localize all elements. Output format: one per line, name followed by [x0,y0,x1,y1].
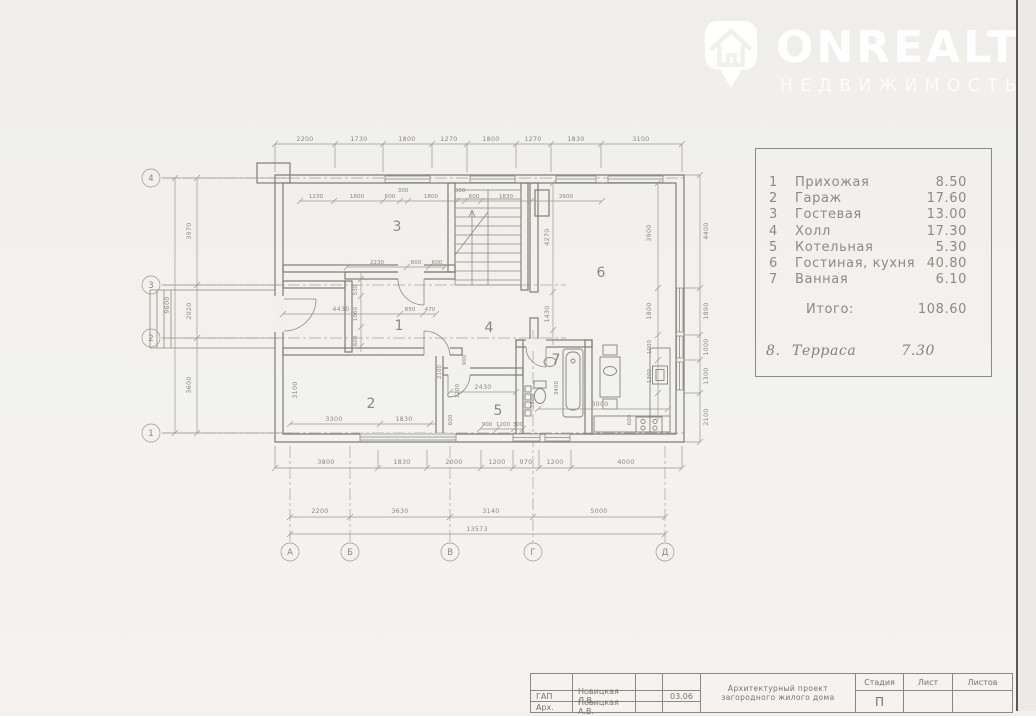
signature-cell [635,701,663,713]
titleblock-empty-cell [635,673,663,691]
dim-label: 1800 [646,302,653,319]
dim-label: 600 [448,414,454,425]
axis-label: 4 [148,174,153,184]
dim-label: 850 [405,307,416,313]
room-number-label: 1 [395,318,404,334]
axis-label: 1 [148,429,153,439]
dim-label: 600 [385,194,396,200]
sheet-value-cell [903,690,953,713]
dim-label: 2100 [437,364,443,379]
dim-label: 1300 [647,368,653,383]
dim-label: 2230 [370,260,385,266]
dim-label: 1800 [398,136,415,143]
axis-label: В [447,548,453,558]
staircase [455,190,521,285]
dim-label: 800 [411,260,422,266]
axis-label: 3 [148,281,153,291]
dim-label: 1200 [546,459,563,466]
dim-label: 4000 [617,459,634,466]
dim-label: 1270 [440,136,457,143]
dim-label: 1890 [703,302,710,319]
scanned-floor-plan-page: { "watermark": { "brand": "ONREALT", "su… [0,0,1036,711]
dim-label: 1430 [544,305,551,322]
sheet-edge [1018,0,1036,711]
dim-label: 3100 [632,136,649,143]
role-cell: Арх. [530,701,573,713]
titleblock-empty-cell [530,673,573,691]
dim-label: 3630 [391,508,408,515]
titleblock-empty-cell [662,673,701,691]
room-number-label: 5 [494,403,503,419]
dim-label: 530 [353,284,359,295]
dim-label: 1830 [395,416,412,423]
dim-label: 4270 [544,228,551,245]
axis-label: Б [347,548,353,558]
dim-label: 1270 [524,136,541,143]
name-cell: Новицкая А.В. [572,701,636,713]
dim-label: 2020 [186,302,193,319]
sheets-header-cell: Листов [952,673,1013,691]
dim-label: 1200 [488,459,505,466]
room-number-label: 4 [485,320,494,336]
dim-label: 4400 [703,222,710,239]
fixtures [525,345,670,432]
dim-label: 1230 [309,194,324,200]
stage-header-cell: Стадия [855,673,904,691]
dim-label: 1200 [496,422,511,428]
dim-label: 3800 [317,459,334,466]
project-title-line2: загородного жилого дома [721,693,834,702]
dim-label: 2500 [530,393,536,408]
dim-label: 2100 [703,408,710,425]
dim-label: 9600 [164,296,171,313]
dim-label: 1200 [455,383,461,398]
dim-label: 900 [482,422,493,428]
dim-label: 3300 [325,416,342,423]
stage-value-cell: П [855,690,904,713]
dim-label: 900 [462,354,468,365]
dim-label: 1830 [393,459,410,466]
sheet-header-cell: Лист [903,673,953,691]
axis-label: А [287,548,293,558]
dim-label: 1830 [567,136,584,143]
dim-label: 2200 [311,508,328,515]
dim-label: 3970 [186,222,193,239]
floor-plan-drawing: 2200 1730 1800 1270 1800 1270 1830 3100 … [0,0,1036,711]
dim-label: 2000 [445,459,462,466]
date-cell [662,701,701,713]
walls [257,163,684,442]
room-number-label: 3 [393,219,402,235]
dim-label: 3140 [482,508,499,515]
dim-label: 2600 [559,194,574,200]
dim-label: 970 [520,459,533,466]
dimension-lines [162,141,703,537]
dim-label: 300 [513,422,524,428]
dim-label: 1000 [703,338,710,355]
axis-label: 2 [148,334,153,344]
bathtub-icon [563,349,583,417]
room-number-label: 6 [597,265,606,281]
dim-label: 1730 [350,136,367,143]
dim-label: 470 [425,307,436,313]
dim-label: 300 [398,188,409,194]
room-number-label: 2 [367,396,376,412]
project-title-line1: Архитектурный проект [728,684,828,693]
dim-label: 3900 [646,224,653,241]
dim-label: 2200 [296,136,313,143]
dim-label: 1800 [482,136,499,143]
dim-label: 3000 [591,401,608,408]
axis-label: Д [662,548,669,558]
dim-label: 300 [455,188,466,194]
dim-label: 3100 [292,381,299,398]
dim-label: 1000 [647,339,653,354]
room-number-label: 7 [552,352,561,368]
sheets-value-cell [952,690,1013,713]
dim-label: 600 [353,335,359,346]
dim-label: 600 [432,260,443,266]
dim-label: 5000 [590,508,607,515]
dim-label: 3600 [186,376,193,393]
axis-grid-lines [162,178,686,543]
dim-label: 4430 [332,306,349,313]
project-title-cell: Архитектурный проект загородного жилого … [700,673,856,713]
wall-openings [274,263,546,441]
axis-bubbles: А Б В Г Д 4 3 2 1 [142,169,674,561]
dim-label: 1060 [353,306,359,321]
dim-label: 13573 [466,526,488,533]
dim-label: 600 [469,194,480,200]
dim-label: 1830 [499,194,514,200]
axis-label: Г [530,548,535,558]
dim-label: 600 [627,414,633,425]
dim-label: 1800 [350,194,365,200]
dining-table-icon [600,345,620,409]
dim-label: 3400 [554,380,560,395]
dim-label: 1800 [424,194,439,200]
dim-label: 2430 [474,384,491,391]
dim-label: 1300 [703,367,710,384]
kitchen-sink-icon [653,366,668,384]
